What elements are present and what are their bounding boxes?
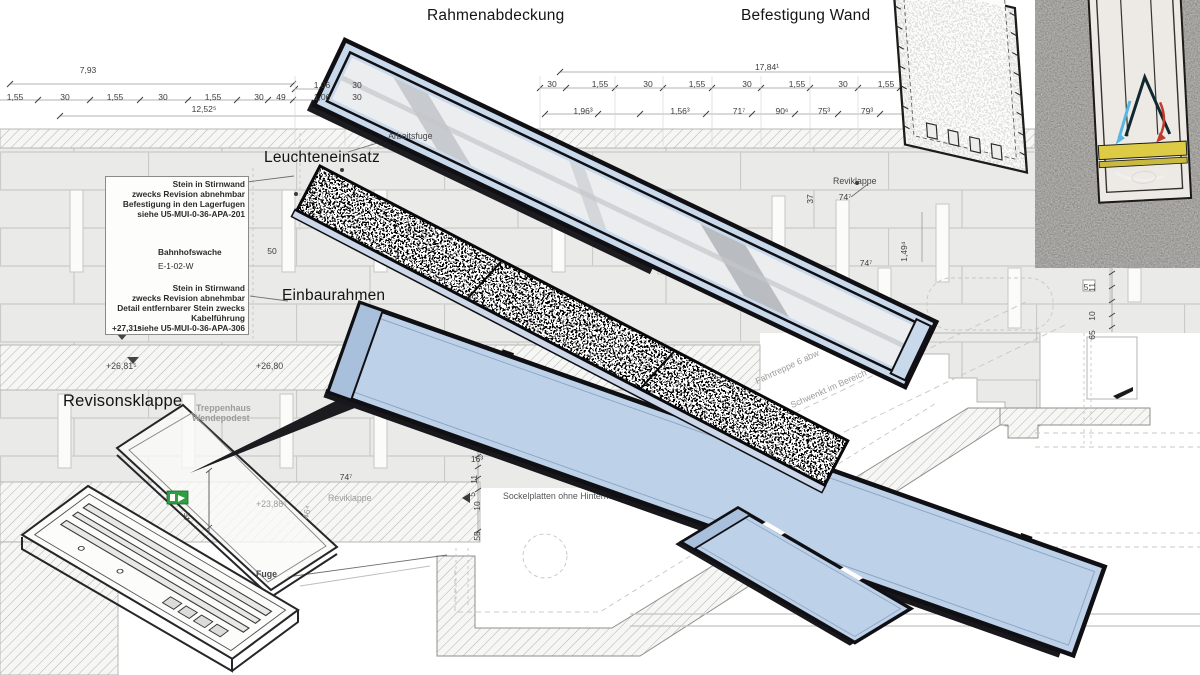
annotation-label: +26,80 bbox=[256, 361, 283, 371]
dimension-label: 1,49⁴ bbox=[900, 242, 910, 262]
label-rahmenabdeckung: Rahmenabdeckung bbox=[427, 7, 564, 25]
note-line: zwecks Revision abnehmbar bbox=[132, 293, 245, 303]
dimension-label: 50 bbox=[267, 247, 276, 257]
note-line: siehe U5-MUI-0-36-APA-306 bbox=[137, 323, 245, 333]
dimension-label: 90⁶ bbox=[776, 107, 789, 117]
note-line: zwecks Revision abnehmbar bbox=[132, 189, 245, 199]
annotation-label: +26,81⁵ bbox=[106, 361, 137, 371]
dimension-label: 30 bbox=[643, 80, 652, 90]
dimension-label: 49 bbox=[276, 93, 285, 103]
dimension-label: 65 bbox=[1088, 330, 1098, 339]
dimension-label: 5 bbox=[1084, 283, 1089, 293]
drawing-canvas: Sockelplatten ohne HintermöKante der Fah… bbox=[0, 0, 1200, 675]
elevation-label: +27,31⁵ bbox=[112, 323, 142, 333]
dimension-label: 10 bbox=[1088, 311, 1098, 320]
dimension-label: 30 bbox=[254, 93, 263, 103]
dimension-label: 12,52⁵ bbox=[192, 105, 217, 115]
dimension-label: 37 bbox=[806, 194, 816, 203]
label-einbaurahmen: Einbaurahmen bbox=[282, 287, 385, 305]
dimension-label: 71⁷ bbox=[733, 107, 746, 117]
dimension-label: 30 bbox=[547, 80, 556, 90]
note-line: Stein in Stirnwand bbox=[173, 179, 245, 189]
dimension-label: 1,55 bbox=[878, 80, 895, 90]
dimension-label: 37 bbox=[308, 196, 318, 205]
dimension-label: 30 bbox=[60, 93, 69, 103]
dimension-label: 1,55 bbox=[789, 80, 806, 90]
dimension-label: 7,93 bbox=[80, 66, 97, 76]
dimension-label: 74⁷ bbox=[860, 259, 873, 269]
dimension-label: 1,96³ bbox=[573, 107, 592, 117]
dimension-label: 10 bbox=[473, 501, 483, 510]
dimension-label: 30 bbox=[352, 93, 361, 103]
room-id: E-1-02-W bbox=[158, 261, 194, 271]
label-befestigung-wand: Befestigung Wand bbox=[741, 7, 870, 25]
annotations-over-layer: Rahmenabdeckung Befestigung Wand Leuchte… bbox=[0, 0, 1200, 675]
background-annotation: +23,86⁵ bbox=[256, 499, 287, 509]
dimension-label: 1,55 bbox=[7, 93, 24, 103]
dimension-label: 5 bbox=[468, 492, 478, 497]
annotation-label: Fuge bbox=[256, 569, 277, 579]
dimension-label: 45 bbox=[183, 512, 193, 521]
dimension-label: 75³ bbox=[818, 107, 830, 117]
background-annotation: Wendepodest bbox=[192, 413, 250, 423]
dimension-label: 16³ bbox=[471, 455, 483, 465]
annotation-label: Reviklappe bbox=[833, 176, 877, 186]
dimension-label: 11 bbox=[470, 475, 480, 484]
note-line: Kabelführung bbox=[191, 313, 245, 323]
dimension-label: 74⁷ bbox=[839, 193, 852, 203]
note-line: Stein in Stirnwand bbox=[173, 283, 245, 293]
note-line: Befestigung in den Lagerfugen bbox=[123, 199, 245, 209]
note-line: siehe U5-MUI-0-36-APA-201 bbox=[137, 209, 245, 219]
dimension-label: 79³ bbox=[861, 107, 873, 117]
dimension-label: 1,55 bbox=[689, 80, 706, 90]
dimension-label: 17,84¹ bbox=[755, 63, 779, 73]
background-annotation: 46⁴ bbox=[300, 504, 313, 520]
room-name: Bahnhofswache bbox=[158, 247, 222, 257]
dimension-label: 30 bbox=[838, 80, 847, 90]
dimension-label: 1,06 bbox=[314, 93, 331, 103]
label-leuchteneinsatz: Leuchteneinsatz bbox=[264, 149, 380, 167]
dimension-label: 55 bbox=[473, 531, 483, 540]
dimension-label: 1,06 bbox=[314, 81, 331, 91]
dimension-label: 30 bbox=[158, 93, 167, 103]
dimension-label: 1,56³ bbox=[670, 107, 689, 117]
annotation-label: Arbeitsfuge bbox=[388, 131, 433, 141]
dimension-label: 11 bbox=[1088, 283, 1098, 292]
label-revisonsklappe: Revisonsklappe bbox=[63, 392, 182, 411]
dimension-label: 30 bbox=[742, 80, 751, 90]
note-line: Detail entfernbarer Stein zwecks bbox=[117, 303, 245, 313]
background-annotation: Treppenhaus bbox=[196, 403, 251, 413]
dimension-label: 74⁷ bbox=[340, 473, 353, 483]
dimension-label: 1,55 bbox=[205, 93, 222, 103]
dimension-label: 1,55 bbox=[592, 80, 609, 90]
dimension-label: 30 bbox=[352, 81, 361, 91]
note-box: Stein in Stirnwand zwecks Revision abneh… bbox=[105, 176, 249, 335]
dimension-label: 1,55 bbox=[107, 93, 124, 103]
